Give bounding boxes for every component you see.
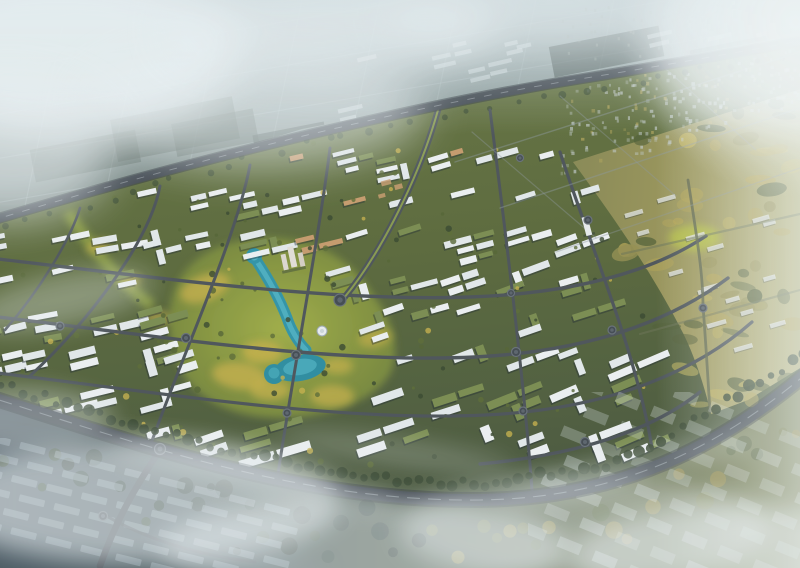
- aerial-city-render: [0, 0, 800, 568]
- scene-svg: [0, 0, 800, 568]
- cool-tint: [0, 0, 800, 568]
